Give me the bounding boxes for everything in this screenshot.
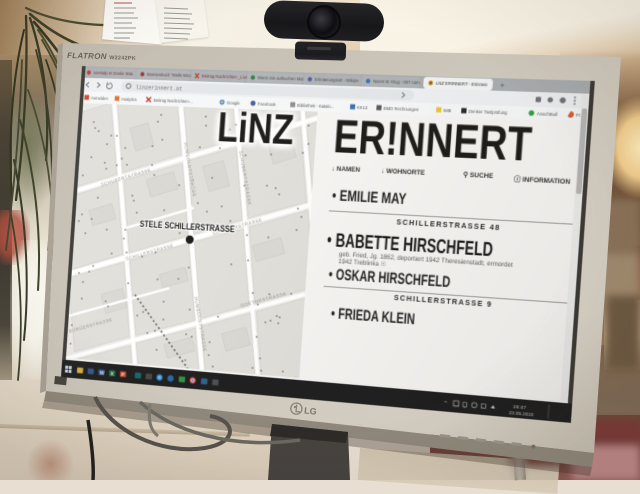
svg-text:x: x bbox=[485, 82, 488, 88]
svg-text:Beitrag Nachrichten-...: Beitrag Nachrichten-... bbox=[154, 98, 194, 105]
svg-text:⌃: ⌃ bbox=[443, 401, 448, 408]
svg-text:x: x bbox=[130, 71, 132, 76]
svg-text:Anmelden: Anmelden bbox=[91, 95, 109, 101]
svg-text:Analytics: Analytics bbox=[121, 96, 137, 102]
svg-text:W: W bbox=[99, 370, 104, 377]
svg-text:+: + bbox=[500, 82, 505, 90]
svg-text:LG: LG bbox=[304, 405, 317, 416]
svg-text:23.05.2022: 23.05.2022 bbox=[509, 410, 535, 418]
